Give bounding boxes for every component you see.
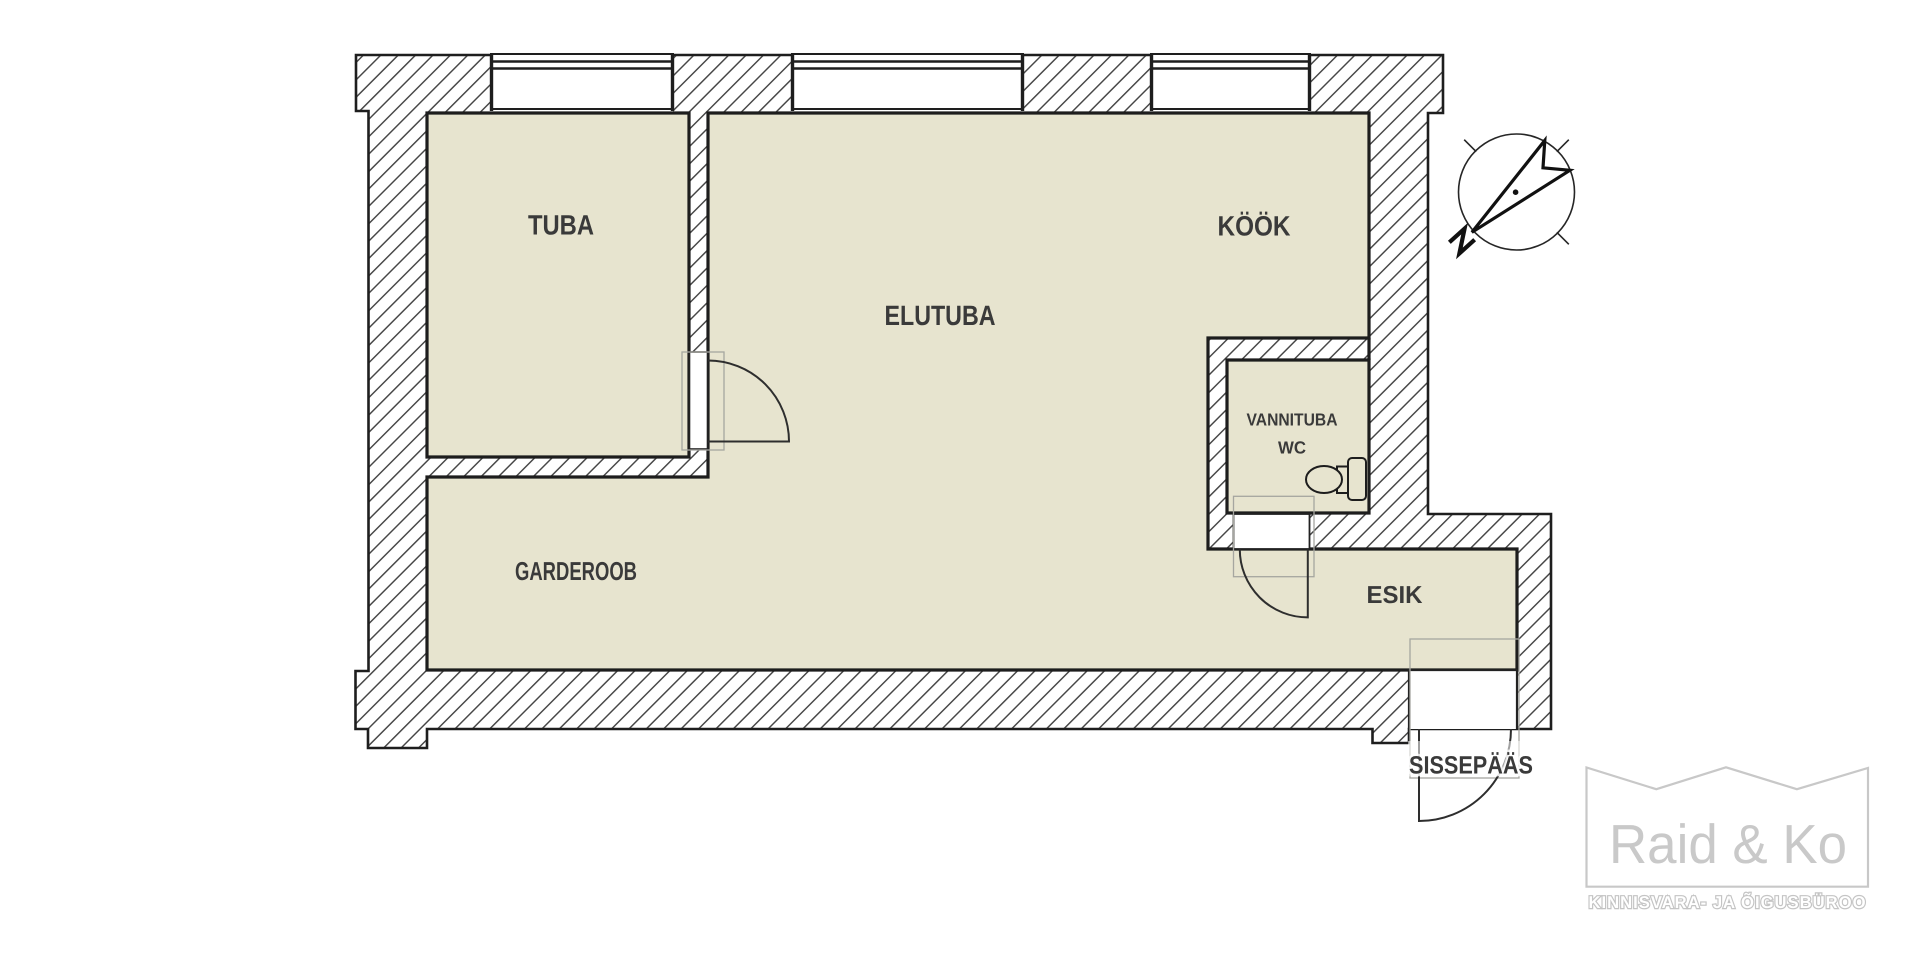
svg-text:WC: WC — [1278, 438, 1306, 458]
svg-text:VANNITUBA: VANNITUBA — [1247, 410, 1338, 430]
svg-text:ESIK: ESIK — [1367, 582, 1423, 609]
svg-text:SISSEPÄÄS: SISSEPÄÄS — [1409, 752, 1533, 780]
svg-text:KÖÖK: KÖÖK — [1218, 211, 1291, 242]
svg-text:GARDEROOB: GARDEROOB — [515, 556, 637, 586]
svg-text:KINNISVARA- JA ÕIGUSBÜROO: KINNISVARA- JA ÕIGUSBÜROO — [1589, 892, 1867, 912]
svg-text:Raid & Ko: Raid & Ko — [1609, 813, 1847, 875]
svg-text:TUBA: TUBA — [528, 210, 594, 241]
svg-text:ELUTUBA: ELUTUBA — [885, 300, 996, 331]
